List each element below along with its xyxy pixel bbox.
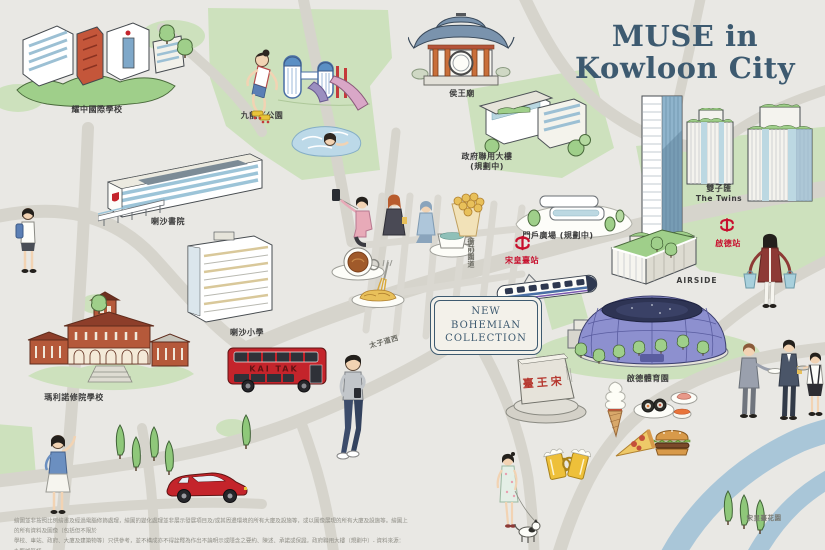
- cypress-tree: [112, 424, 128, 460]
- round-tree: [696, 340, 710, 356]
- badge-line2: COLLECTION: [436, 332, 536, 346]
- kai-tak-sports-park-label: 啟德體育園: [627, 373, 670, 384]
- government-building-illustration: [478, 78, 593, 160]
- round-tree: [632, 340, 646, 356]
- round-tree: [664, 242, 678, 258]
- maryknoll-school-label: 瑪利諾修院學校: [44, 392, 104, 403]
- round-tree: [650, 236, 664, 252]
- disclaimer-text: 繪圖並非按照比例繪畫及經過電腦修飾處理，繪圖的變化處理並非展示發展項目及/或其周…: [14, 516, 410, 550]
- title-line1: MUSE in: [559, 20, 811, 52]
- collection-badge-inner: NEW BOHEMIAN COLLECTION: [434, 300, 538, 351]
- twins-label-en: The Twins: [696, 194, 742, 203]
- maryknoll-school-illustration: [20, 290, 200, 395]
- round-tree: [592, 348, 606, 364]
- schoolboy-figure: [8, 205, 48, 280]
- yew-chung-school-label: 耀中國際學校: [72, 104, 123, 115]
- round-tree: [654, 338, 668, 354]
- mtr-logo-icon: [719, 216, 735, 234]
- round-tree: [612, 344, 626, 360]
- twins-tower-2-illustration: [738, 103, 825, 205]
- round-tree: [574, 342, 588, 358]
- page-title: MUSE in Kowloon City: [559, 20, 811, 85]
- waving-woman-figure: [32, 430, 80, 518]
- kowloon-city-illustrated-map: 耀中國際學校 九龍仔公園: [0, 0, 825, 550]
- roller-skater-figure: [238, 48, 286, 128]
- round-tree: [676, 334, 690, 350]
- la-salle-primary-label: 喇沙小學: [230, 327, 264, 338]
- twins-label-zh: 雙子匯: [696, 184, 742, 194]
- riverside-garden-label: 宋皇臺花園: [747, 512, 782, 522]
- disclaimer-line1: 繪圖並非按照比例繪畫及經過電腦修飾處理，繪圖的變化處理並非展示發展項目及/或其周…: [14, 516, 410, 536]
- hau-wong-temple-label: 侯王廟: [449, 88, 475, 99]
- double-decker-bus: KAI TAK: [222, 343, 334, 395]
- sung-wong-toi-monument: 臺王宋: [500, 346, 598, 428]
- swimmer-figure: [288, 118, 368, 160]
- mtr-logo-icon: [514, 233, 531, 253]
- beer-mugs-illustration: [540, 436, 596, 488]
- la-salle-college-illustration: [98, 142, 278, 227]
- monument-inscription: 臺王宋: [522, 374, 565, 391]
- round-tree: [158, 24, 176, 44]
- walking-man-figure: [332, 350, 374, 472]
- shopper-woman-figure: [740, 230, 800, 318]
- badge-line1: NEW BOHEMIAN: [436, 305, 536, 332]
- kai-tak-station-label: 啟德站: [715, 238, 741, 249]
- gateway-plaza-label: 門戶廣場 (規劃中): [522, 230, 593, 241]
- twins-label: 雙子匯 The Twins: [696, 184, 742, 203]
- cypress-tree: [128, 436, 144, 472]
- cypress-tree: [146, 426, 162, 462]
- egg-waffle-illustration: [446, 190, 488, 240]
- bus-route-text: KAI TAK: [249, 365, 298, 374]
- business-people-figures: [733, 336, 825, 438]
- cypress-tree: [161, 440, 177, 476]
- qipao-woman-with-dog: [486, 450, 546, 550]
- government-building-label-line2: (規劃中): [462, 162, 513, 172]
- government-building-label: 政府聯用大樓 (規劃中): [462, 152, 513, 172]
- disclaimer-line2: 學校、車站、政府、大廈及建築物等）只供參考，並不構成亦不得詮釋為作出不論明示或隱…: [14, 536, 410, 550]
- government-building-label-line1: 政府聯用大樓: [462, 152, 513, 162]
- cypress-tree: [238, 414, 254, 450]
- sushi-set-illustration: [630, 384, 700, 422]
- nga-tsin-wai-road-label: 衙前圍道: [466, 238, 476, 268]
- cypress-tree: [720, 490, 736, 526]
- twins-tower-illustration: [679, 108, 741, 190]
- noodles-illustration: [348, 260, 410, 308]
- title-line2: Kowloon City: [559, 52, 811, 84]
- la-salle-college-label: 喇沙書院: [151, 216, 185, 227]
- round-tree: [176, 38, 194, 58]
- round-tree: [90, 294, 108, 314]
- pizza-slice-illustration: [612, 426, 656, 460]
